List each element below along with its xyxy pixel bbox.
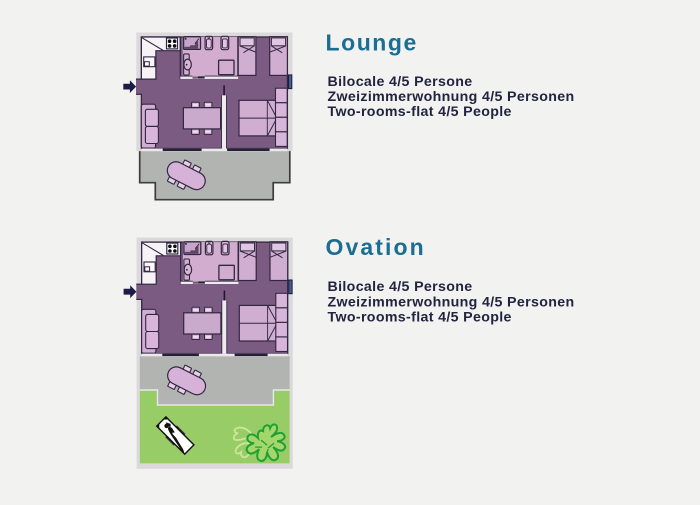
svg-text:Lounge: Lounge — [326, 29, 418, 55]
svg-text:Two-rooms-flat 4/5 People: Two-rooms-flat 4/5 People — [328, 310, 512, 326]
svg-text:Two-rooms-flat 4/5 People: Two-rooms-flat 4/5 People — [328, 104, 512, 120]
svg-text:Bilocale 4/5 Persone: Bilocale 4/5 Persone — [328, 74, 473, 90]
svg-text:Zweizimmerwohnung 4/5 Personen: Zweizimmerwohnung 4/5 Personen — [328, 294, 575, 310]
svg-text:Ovation: Ovation — [326, 234, 426, 260]
svg-text:Zweizimmerwohnung 4/5 Personen: Zweizimmerwohnung 4/5 Personen — [328, 89, 575, 105]
svg-text:Bilocale 4/5 Persone: Bilocale 4/5 Persone — [328, 279, 473, 295]
